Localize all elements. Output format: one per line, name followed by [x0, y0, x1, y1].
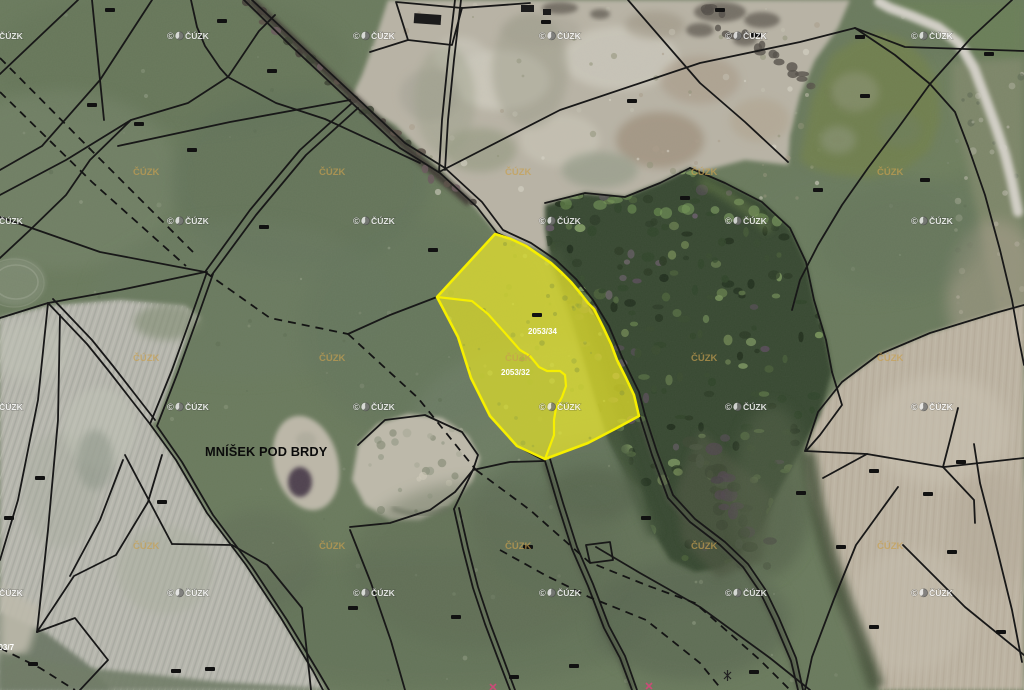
svg-text:©: ©	[353, 402, 360, 412]
svg-text:ČÚZK: ČÚZK	[319, 166, 346, 178]
svg-text:MNÍŠEK POD BRDY: MNÍŠEK POD BRDY	[205, 444, 328, 459]
svg-text:ČÚZK: ČÚZK	[133, 352, 160, 364]
svg-text:ČÚZK: ČÚZK	[877, 352, 904, 364]
svg-text:©: ©	[539, 31, 546, 41]
svg-text:©: ©	[167, 402, 174, 412]
svg-text:ČÚZK: ČÚZK	[371, 401, 396, 412]
svg-text:2053/32: 2053/32	[501, 368, 530, 377]
svg-text:©: ©	[539, 216, 546, 226]
svg-text:©: ©	[725, 216, 732, 226]
svg-text:©: ©	[353, 31, 360, 41]
svg-text:ČÚZK: ČÚZK	[319, 540, 346, 552]
svg-text:ČÚZK: ČÚZK	[743, 587, 768, 598]
svg-text:©: ©	[353, 216, 360, 226]
svg-text:ČÚZK: ČÚZK	[185, 401, 210, 412]
svg-text:ČÚZK: ČÚZK	[505, 352, 532, 364]
svg-text:©: ©	[167, 588, 174, 598]
svg-text:ČÚZK: ČÚZK	[557, 30, 582, 41]
svg-text:ČÚZK: ČÚZK	[691, 540, 718, 552]
svg-text:ČÚZK: ČÚZK	[929, 401, 954, 412]
svg-text:ČÚZK: ČÚZK	[877, 166, 904, 178]
svg-text:ČÚZK: ČÚZK	[743, 401, 768, 412]
svg-text:2053/34: 2053/34	[528, 327, 557, 336]
svg-text:©: ©	[725, 31, 732, 41]
svg-text:©: ©	[167, 31, 174, 41]
svg-text:ČÚZK: ČÚZK	[0, 215, 24, 226]
svg-text:ČÚZK: ČÚZK	[185, 587, 210, 598]
svg-text:203/7: 203/7	[0, 643, 15, 652]
svg-text:ČÚZK: ČÚZK	[0, 587, 24, 598]
svg-text:©: ©	[539, 588, 546, 598]
svg-text:ČÚZK: ČÚZK	[185, 215, 210, 226]
svg-text:©: ©	[911, 216, 918, 226]
svg-text:©: ©	[167, 216, 174, 226]
svg-text:ČÚZK: ČÚZK	[133, 540, 160, 552]
svg-text:ČÚZK: ČÚZK	[185, 30, 210, 41]
svg-text:ČÚZK: ČÚZK	[505, 166, 532, 178]
svg-text:ČÚZK: ČÚZK	[319, 352, 346, 364]
svg-text:ČÚZK: ČÚZK	[0, 30, 24, 41]
svg-text:ČÚZK: ČÚZK	[691, 166, 718, 178]
svg-text:ČÚZK: ČÚZK	[929, 30, 954, 41]
svg-text:ČÚZK: ČÚZK	[133, 166, 160, 178]
svg-text:ČÚZK: ČÚZK	[371, 215, 396, 226]
svg-text:ČÚZK: ČÚZK	[505, 540, 532, 552]
svg-text:©: ©	[539, 402, 546, 412]
svg-text:ČÚZK: ČÚZK	[877, 540, 904, 552]
svg-text:©: ©	[725, 588, 732, 598]
svg-text:ČÚZK: ČÚZK	[691, 352, 718, 364]
svg-text:©: ©	[911, 588, 918, 598]
svg-text:ČÚZK: ČÚZK	[557, 587, 582, 598]
svg-text:ČÚZK: ČÚZK	[371, 30, 396, 41]
svg-text:ČÚZK: ČÚZK	[557, 215, 582, 226]
svg-text:ČÚZK: ČÚZK	[371, 587, 396, 598]
svg-text:ČÚZK: ČÚZK	[557, 401, 582, 412]
svg-text:ČÚZK: ČÚZK	[743, 30, 768, 41]
svg-text:©: ©	[911, 402, 918, 412]
svg-text:©: ©	[353, 588, 360, 598]
svg-text:ČÚZK: ČÚZK	[929, 215, 954, 226]
svg-text:©: ©	[911, 31, 918, 41]
svg-text:ČÚZK: ČÚZK	[743, 215, 768, 226]
svg-text:©: ©	[725, 402, 732, 412]
svg-text:ČÚZK: ČÚZK	[0, 401, 24, 412]
svg-text:ČÚZK: ČÚZK	[929, 587, 954, 598]
